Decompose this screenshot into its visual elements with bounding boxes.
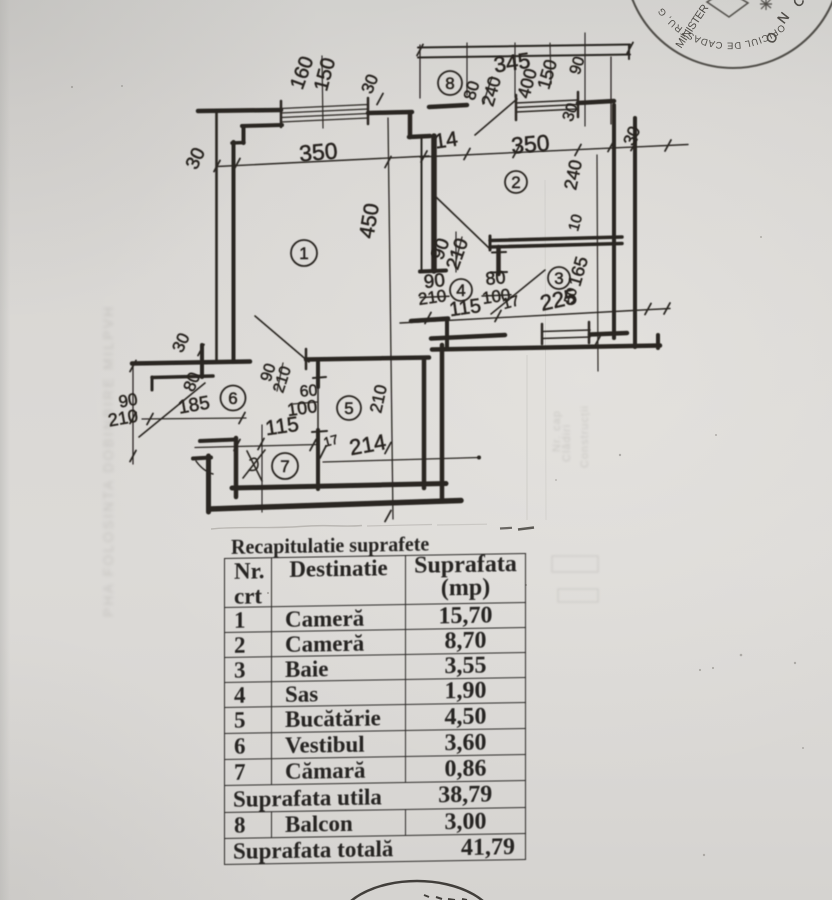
svg-text:1: 1 — [299, 244, 308, 263]
svg-text:115: 115 — [264, 413, 300, 440]
svg-text:2: 2 — [511, 173, 520, 192]
svg-text:5: 5 — [344, 399, 353, 418]
svg-text:PHA FOLOSINTA DOBINBIRE MILPVH: PHA FOLOSINTA DOBINBIRE MILPVH — [101, 304, 116, 617]
svg-text:7: 7 — [280, 457, 289, 476]
svg-text:30: 30 — [182, 145, 210, 173]
svg-text:350: 350 — [510, 129, 550, 158]
svg-text:10: 10 — [565, 212, 586, 233]
svg-text:240: 240 — [477, 74, 505, 108]
svg-text:214: 214 — [347, 429, 388, 460]
svg-text:240: 240 — [560, 158, 586, 192]
svg-text:150: 150 — [533, 57, 561, 91]
svg-text:14: 14 — [433, 128, 460, 154]
svg-text:17: 17 — [501, 292, 522, 313]
svg-text:210: 210 — [366, 383, 390, 415]
svg-text:Clădiri: Clădiri — [561, 424, 573, 462]
svg-text:350: 350 — [298, 137, 338, 166]
svg-text:210: 210 — [106, 406, 139, 431]
svg-text:30: 30 — [358, 72, 383, 97]
svg-text:225: 225 — [538, 284, 579, 316]
svg-text:30: 30 — [620, 124, 645, 149]
svg-text:30: 30 — [168, 330, 193, 355]
svg-text:Construcții: Construcții — [579, 405, 591, 468]
svg-text:115: 115 — [448, 295, 483, 321]
svg-text:6: 6 — [228, 389, 237, 408]
svg-text:185: 185 — [177, 392, 212, 418]
svg-text:210: 210 — [417, 286, 448, 309]
svg-text:8: 8 — [445, 74, 454, 93]
svg-text:450: 450 — [355, 202, 384, 241]
svg-text:17: 17 — [322, 432, 340, 450]
svg-text:165: 165 — [564, 254, 592, 288]
